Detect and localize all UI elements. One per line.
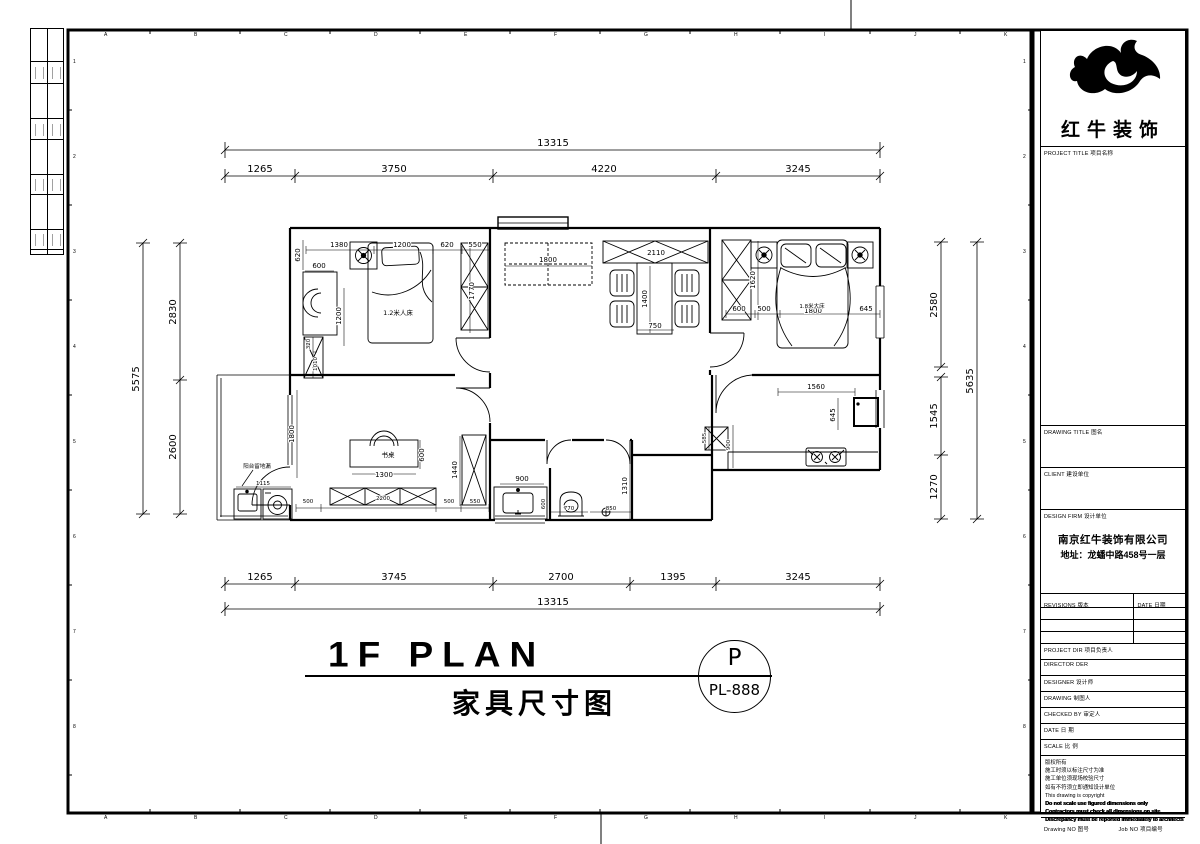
dim-ba-900: 900 <box>515 475 528 483</box>
ruler-letter: H <box>734 33 738 38</box>
client-section: CLIENT 建设单位 <box>1041 467 1185 509</box>
fold-strip <box>30 28 64 255</box>
ruler-letter: C <box>284 33 288 38</box>
interior-dimension-lines <box>236 240 880 519</box>
dim-st-600: 600 <box>418 448 426 461</box>
client-label: CLIENT 建设单位 <box>1041 468 1185 478</box>
revision-row-divider <box>1133 632 1134 643</box>
design-firm-address: 地址：龙蟠中路458号一层 <box>1041 548 1185 561</box>
dim-lv-1800: 1800 <box>539 256 557 264</box>
dim-lv-1400: 1400 <box>641 290 649 308</box>
ruler-number: 5 <box>73 440 76 445</box>
drawing-sheet: 13315 1265 3750 4220 3245 1265 3745 2700… <box>0 0 1200 844</box>
logo-section: 红牛装饰 <box>1041 31 1185 146</box>
furniture <box>234 240 878 519</box>
bubble-letter: P <box>699 645 770 671</box>
fold-strip-mark <box>35 179 44 191</box>
project-title-section: PROJECT TITLE 项目名称 <box>1041 146 1185 425</box>
dim-b1-desk1200: 1200 <box>335 307 343 325</box>
room-labels: 1.2米人床 1.8米大床 书桌 阳台留地漏 <box>243 302 825 470</box>
dim-left-overall: 5575 <box>131 366 142 391</box>
dim-b2-500: 500 <box>757 305 770 313</box>
interior-dimensions: 620 1380 1200 620 550 600 1200 1770 320 … <box>256 241 873 512</box>
bed2-label: 1.8米大床 <box>799 302 825 310</box>
ruler-letter: B <box>194 33 197 38</box>
dim-b1-320: 320 <box>306 338 312 349</box>
ruler-letter: I <box>824 33 825 38</box>
dim-right-overall: 5635 <box>965 368 976 393</box>
revision-row <box>1041 607 1185 619</box>
revision-row <box>1041 631 1185 643</box>
ruler-number: 1 <box>73 60 76 65</box>
dim-left-b: 2600 <box>168 434 179 459</box>
ruler-letter: G <box>644 33 648 38</box>
drawing-no-section: Drawing NO 图号 Job NO 项目编号 <box>1041 817 1185 842</box>
revision-row <box>1041 619 1185 631</box>
dim-lv-750: 750 <box>648 322 661 330</box>
balcony-note-label: 阳台留地漏 <box>243 462 271 470</box>
dim-b1-bed1200: 1200 <box>393 241 411 249</box>
revision-row-divider <box>1133 608 1134 619</box>
checked-by-label: CHECKED BY 审定人 <box>1041 708 1185 718</box>
study-furniture <box>330 431 486 505</box>
living-furniture <box>505 241 708 334</box>
dim-bot-c: 2700 <box>548 572 573 583</box>
ruler-number: 8 <box>1023 725 1026 730</box>
copyright-line: 施工单位须现场校验尺寸 <box>1045 775 1185 783</box>
dim-st-1800: 1800 <box>288 425 296 443</box>
ruler-number: 6 <box>1023 535 1026 540</box>
plan-title-cn: 家具尺寸图 <box>452 682 617 722</box>
dim-b1-620: 620 <box>440 241 453 249</box>
dim-ba-850: 850 <box>606 506 617 512</box>
dim-b2-600: 600 <box>732 305 745 313</box>
fold-strip-mark <box>52 67 61 79</box>
drawing-title-section: DRAWING TITLE 图名 <box>1041 425 1185 467</box>
ruler-letter: H <box>734 816 738 821</box>
ruler-number: 4 <box>1023 345 1026 350</box>
dim-b2-1620: 1620 <box>749 271 757 289</box>
designer-label: DESIGNER 设计师 <box>1041 676 1185 686</box>
fold-strip-mark <box>35 124 44 136</box>
dim-st-550: 550 <box>470 499 481 505</box>
dim-right-b: 1545 <box>929 403 940 428</box>
scale-row: SCALE 比 例 <box>1041 739 1185 755</box>
ruler-number: 4 <box>73 345 76 350</box>
dim-st-2200: 2200 <box>376 496 390 502</box>
dim-b1-1380: 1380 <box>330 241 348 249</box>
dim-bot-e: 3245 <box>785 572 810 583</box>
copyright-line: 如有不符须立即通知设计单位 <box>1045 784 1185 792</box>
dim-k-900: 900 <box>726 439 732 450</box>
ruler-number: 2 <box>1023 155 1026 160</box>
date-row: DATE 日 期 <box>1041 723 1185 739</box>
drawing-by-row: DRAWING 制图人 <box>1041 691 1185 707</box>
dim-top-a: 1265 <box>247 164 272 175</box>
dim-b1-550: 550 <box>468 241 481 249</box>
plan-title-en: 1F PLAN <box>328 635 545 675</box>
project-dir-label: PROJECT DIR 项目负责人 <box>1041 644 1185 654</box>
copyright-line: 施工时须以标注尺寸为准 <box>1045 767 1185 775</box>
boundary-dimensions: 13315 1265 3750 4220 3245 1265 3745 2700… <box>131 138 976 608</box>
fold-strip-mark <box>35 67 44 79</box>
ruler-number: 2 <box>73 155 76 160</box>
bathroom-fixtures <box>494 487 610 519</box>
dim-top-overall: 13315 <box>537 138 569 149</box>
ruler-letter: G <box>644 816 648 821</box>
drawing-no-label: Drawing NO 图号 <box>1041 823 1111 833</box>
ruler-letter: I <box>824 816 825 821</box>
ruler-number: 7 <box>1023 630 1026 635</box>
kitchen-furniture <box>705 398 878 470</box>
fold-strip-cell <box>31 174 63 195</box>
dim-top-c: 4220 <box>591 164 616 175</box>
ruler-letter: A <box>104 33 107 38</box>
bedroom2-furniture <box>722 240 873 348</box>
director-label: DIRECTOR DER <box>1041 660 1185 668</box>
scale-label: SCALE 比 例 <box>1041 740 1185 750</box>
date-label: DATE 日 期 <box>1041 724 1185 734</box>
ruler-number: 3 <box>73 250 76 255</box>
fold-strip-mark <box>52 179 61 191</box>
ruler-letter: C <box>284 816 288 821</box>
drawing-by-label: DRAWING 制图人 <box>1041 692 1185 702</box>
ruler-letter: K <box>1004 816 1007 821</box>
design-firm-label: DESIGN FIRM 设计单位 <box>1041 510 1185 520</box>
doors <box>252 333 752 505</box>
sheet-number-bubble: P PL-888 <box>698 640 771 713</box>
dim-ba-1310: 1310 <box>621 477 629 495</box>
ruler-letter: K <box>1004 33 1007 38</box>
dim-st-500a: 500 <box>303 499 314 505</box>
dim-bot-d: 1395 <box>660 572 685 583</box>
fold-strip-cell <box>31 118 63 140</box>
dim-ba-600: 600 <box>541 498 547 509</box>
design-firm-section: DESIGN FIRM 设计单位 南京红牛装饰有限公司 地址：龙蟠中路458号一… <box>1041 509 1185 593</box>
dim-ba-770: 770 <box>564 506 575 512</box>
dim-k-645: 645 <box>829 408 837 421</box>
ruler-number: 7 <box>73 630 76 635</box>
ruler-letter: E <box>464 816 467 821</box>
sheet-frame <box>68 0 1187 844</box>
checked-by-row: CHECKED BY 审定人 <box>1041 707 1185 723</box>
ruler-letter: E <box>464 33 467 38</box>
dim-b1-1010: 1010 <box>313 357 319 371</box>
balcony-fixtures <box>234 470 292 519</box>
dim-top-d: 3245 <box>785 164 810 175</box>
desk-label: 书桌 <box>382 450 396 459</box>
dim-right-a: 2580 <box>929 292 940 317</box>
ruler-letter: J <box>914 33 917 38</box>
drawing-title-label: DRAWING TITLE 图名 <box>1041 426 1185 436</box>
copyright-section: 版权所有 施工时须以标注尺寸为准 施工单位须现场校验尺寸 如有不符须立即通知设计… <box>1041 755 1185 817</box>
dim-st-1440: 1440 <box>451 461 459 479</box>
bed1-label: 1.2米人床 <box>383 308 413 317</box>
dimension-lines <box>136 142 984 616</box>
ruler-number: 8 <box>73 725 76 730</box>
dim-bot-a: 1265 <box>247 572 272 583</box>
ruler-letter: B <box>194 816 197 821</box>
ruler-number: 6 <box>73 535 76 540</box>
revisions-divider <box>1133 594 1134 607</box>
copyright-line: This drawing is copyright <box>1045 792 1185 800</box>
dim-k-1560: 1560 <box>807 383 825 391</box>
fold-strip-cell <box>31 61 63 84</box>
ruler-number: 3 <box>1023 250 1026 255</box>
fold-strip-mark <box>52 124 61 136</box>
dim-st-1115: 1115 <box>256 481 270 487</box>
ruler-letter: J <box>914 816 917 821</box>
bubble-number: PL-888 <box>699 681 770 699</box>
copyright-line: Do not scale use figured dimensions only <box>1045 800 1185 808</box>
dim-left-a: 2830 <box>168 299 179 324</box>
project-title-label: PROJECT TITLE 项目名称 <box>1041 147 1185 157</box>
dim-st-500b: 500 <box>444 499 455 505</box>
title-block: 红牛装饰 PROJECT TITLE 项目名称 DRAWING TITLE 图名… <box>1040 30 1186 813</box>
revisions-header: REVISIONS 版本 DATE 日期 <box>1041 593 1185 607</box>
ruler-letter: F <box>554 33 557 38</box>
ruler-letter: F <box>554 816 557 821</box>
dim-b1-1770: 1770 <box>468 282 476 300</box>
ruler-letter: D <box>374 33 378 38</box>
dim-top-b: 3750 <box>381 164 406 175</box>
job-no-label: Job NO 项目编号 <box>1115 823 1162 833</box>
dim-bot-overall: 13315 <box>537 597 569 608</box>
fold-strip-mark <box>35 234 44 246</box>
design-firm-name: 南京红牛装饰有限公司 <box>1041 532 1185 547</box>
designer-row: DESIGNER 设计师 <box>1041 675 1185 691</box>
dim-st-1300: 1300 <box>375 471 393 479</box>
dim-right-c: 1270 <box>929 474 940 499</box>
ruler-number: 1 <box>1023 60 1026 65</box>
dim-b1-600: 600 <box>312 262 325 270</box>
director-row: DIRECTOR DER <box>1041 659 1185 675</box>
project-dir-row: PROJECT DIR 项目负责人 <box>1041 643 1185 659</box>
fold-strip-mark <box>52 234 61 246</box>
dim-b1-left620: 620 <box>294 248 302 261</box>
ruler-letter: A <box>104 816 107 821</box>
ruler-letter: D <box>374 816 378 821</box>
copyright-line: 版权所有 <box>1045 759 1185 767</box>
dim-b2-645: 645 <box>859 305 872 313</box>
rednow-bull-logo-icon <box>1069 37 1161 109</box>
dim-k-585: 585 <box>702 432 708 443</box>
brand-name: 红牛装饰 <box>1041 115 1185 142</box>
revision-row-divider <box>1133 620 1134 631</box>
fold-strip-cell <box>31 229 63 250</box>
dim-bot-b: 3745 <box>381 572 406 583</box>
dim-lv-2110: 2110 <box>647 249 665 257</box>
copyright-line: Contractors must check all dimensions on… <box>1045 808 1185 816</box>
ruler-number: 5 <box>1023 440 1026 445</box>
